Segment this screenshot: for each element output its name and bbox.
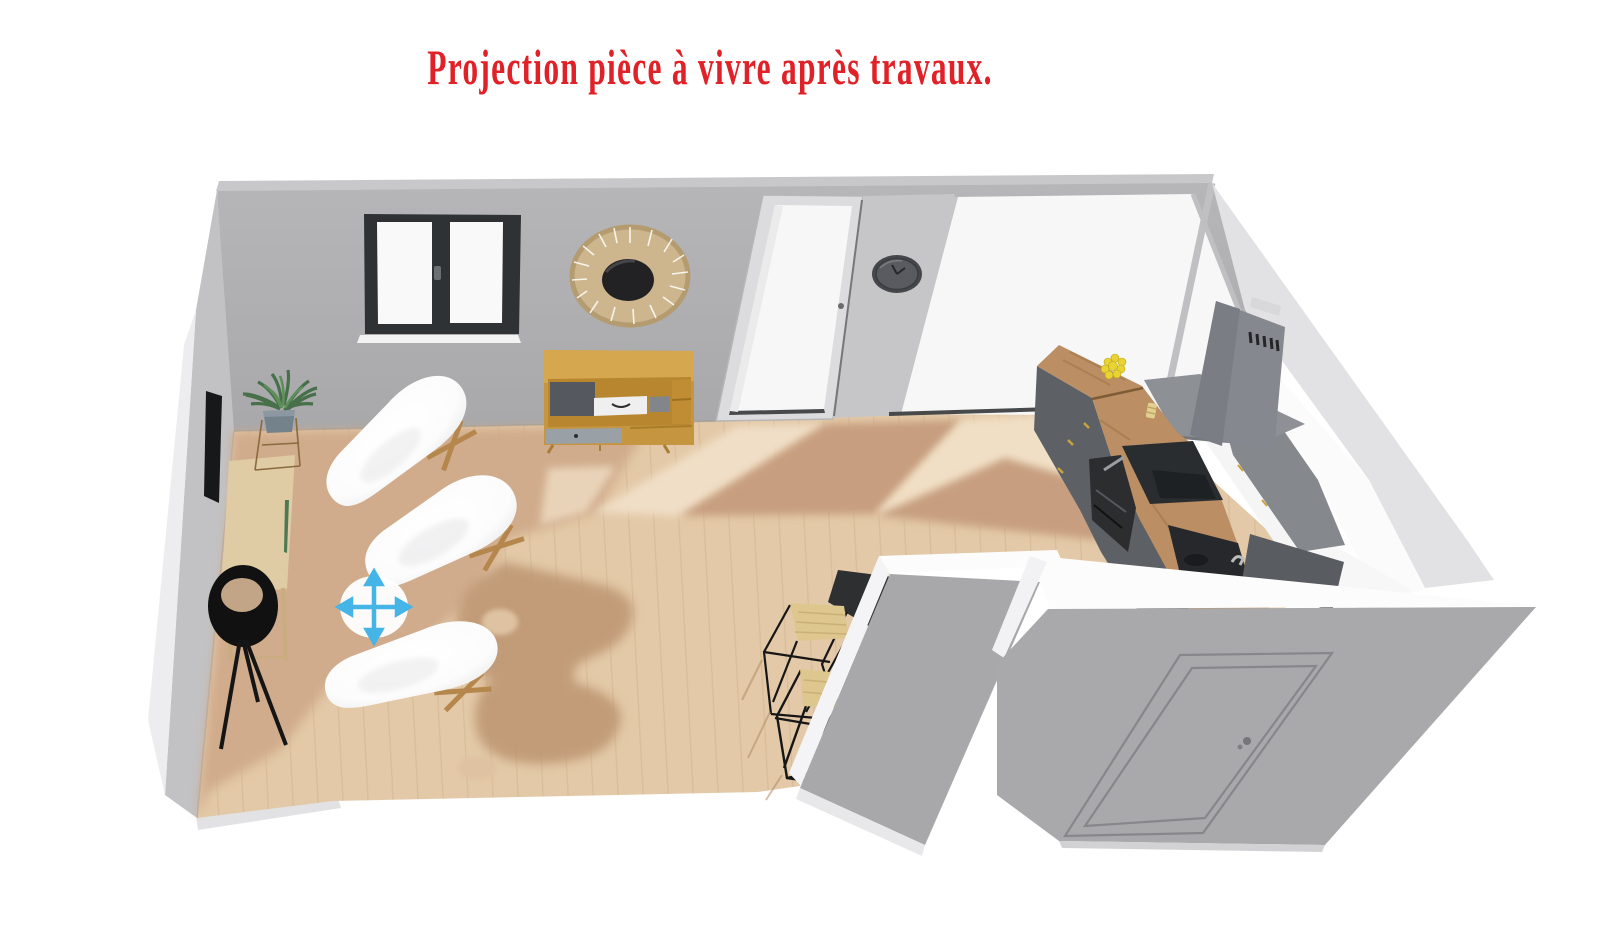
svg-text:Projection pièce à vivre après: Projection pièce à vivre après travaux. [427, 41, 993, 96]
